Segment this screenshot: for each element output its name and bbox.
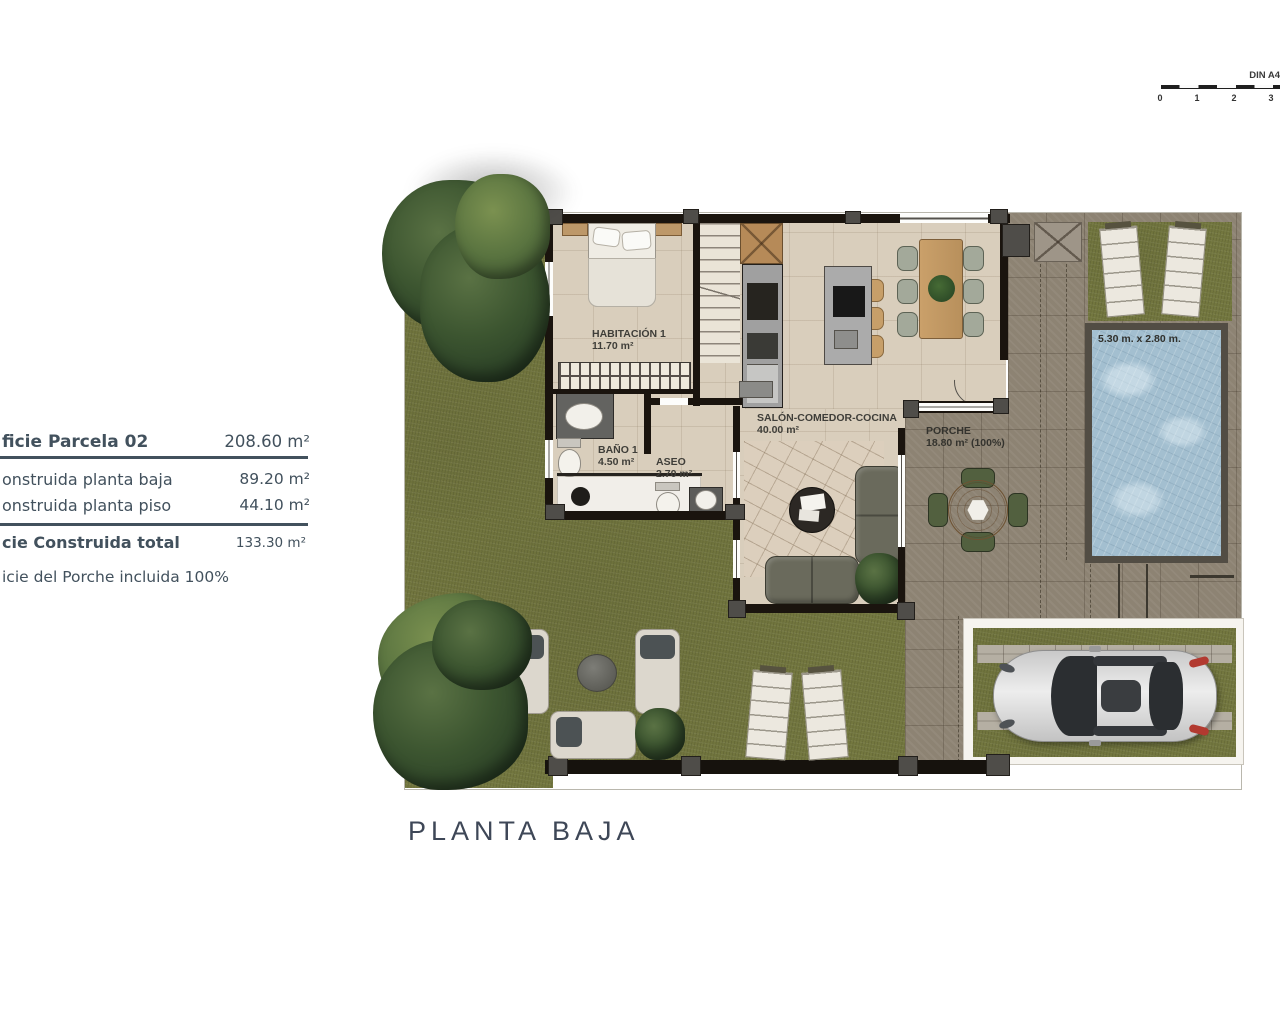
sun-lounger — [745, 669, 793, 760]
sun-lounger — [1099, 226, 1145, 318]
nightstand — [655, 223, 682, 236]
wall-bath-south — [545, 511, 745, 520]
scale-tick: 3 — [1267, 93, 1275, 103]
pool-steps — [1118, 564, 1120, 618]
room-area: 11.70 m² — [592, 340, 666, 352]
area-table: ficie Parcela 02 208.60 m² onstruida pla… — [0, 425, 320, 600]
sofa-cushion — [640, 635, 675, 659]
wall-bath-aseo — [644, 394, 651, 454]
pool-steps — [1146, 564, 1148, 618]
room-label-bano1: BAÑO 1 4.50 m² — [598, 444, 638, 468]
staircase — [700, 223, 740, 363]
room-name: BAÑO 1 — [598, 444, 638, 456]
table-row-label: icie del Porche incluida 100% — [2, 568, 229, 586]
pool-water — [1092, 330, 1221, 556]
garden-sofa — [635, 629, 680, 714]
magazine — [799, 509, 820, 522]
car-sunroof — [1101, 680, 1141, 712]
path-to-gate — [905, 620, 963, 764]
pillar — [990, 209, 1008, 224]
room-area: 40.00 m² — [757, 424, 897, 436]
fence-south — [545, 760, 1010, 774]
lounger-headrest — [1105, 221, 1131, 229]
entry-mat — [739, 381, 773, 398]
porch-chair — [928, 493, 948, 527]
room-label-habitacion1: HABITACIÓN 1 11.70 m² — [592, 328, 666, 352]
pillar — [993, 398, 1009, 414]
pillow — [592, 226, 621, 248]
appliance — [747, 333, 778, 359]
room-label-aseo: ASEO 2.70 m² — [656, 456, 692, 480]
room-name: ASEO — [656, 456, 692, 468]
car-windshield — [1051, 656, 1097, 736]
window — [900, 214, 988, 223]
wall-wardrobe — [553, 389, 693, 394]
dining-chair — [897, 279, 918, 304]
shower-drain — [571, 487, 590, 506]
lounger-headrest — [808, 665, 834, 673]
toilet — [557, 438, 581, 448]
pillow — [621, 230, 652, 251]
floor-plan-page: DIN A4 0 1 2 3 ficie Parcela 02 208.60 m… — [0, 0, 1280, 1024]
island-sink — [834, 330, 858, 349]
wall-living-south — [733, 604, 915, 613]
boundary-dashed-line — [1040, 264, 1041, 618]
room-label-salon: SALÓN-COMEDOR-COCINA 40.00 m² — [757, 412, 897, 436]
room-area: 2.70 m² — [656, 468, 692, 480]
roof-projection-pad — [1034, 222, 1082, 262]
car — [993, 646, 1217, 746]
sun-lounger — [1161, 226, 1207, 318]
page-title: PLANTA BAJA — [408, 816, 640, 847]
bed — [588, 223, 656, 307]
scale-tick: 1 — [1193, 93, 1201, 103]
table-row-label: cie Construida total — [2, 533, 180, 552]
room-area: 4.50 m² — [598, 456, 638, 468]
room-label-porche: PORCHE 18.80 m² (100%) — [926, 425, 1005, 449]
fence-post — [681, 756, 701, 776]
pillar — [903, 400, 919, 418]
window — [545, 440, 553, 478]
tree — [455, 174, 550, 279]
room-name: PORCHE — [926, 425, 1005, 437]
cooktop — [833, 286, 865, 317]
pool: 5.30 m. x 2.80 m. — [1085, 323, 1228, 563]
table-divider — [0, 456, 308, 459]
table-divider — [0, 523, 308, 526]
fence-post — [986, 754, 1010, 776]
car-mirror — [1089, 646, 1101, 652]
dining-chair — [963, 279, 984, 304]
table-row-value: 208.60 m² — [180, 432, 310, 451]
wall-bedroom-stairs — [693, 223, 700, 406]
scale-bar: DIN A4 0 1 2 3 — [1158, 70, 1280, 104]
pillar — [845, 211, 861, 224]
lounger-headrest — [1175, 221, 1201, 229]
oven — [747, 283, 778, 320]
porch-chair — [1008, 493, 1028, 527]
dining-chair — [897, 312, 918, 337]
car-mirror — [1089, 740, 1101, 746]
lounger-headrest — [760, 665, 786, 673]
room-name: SALÓN-COMEDOR-COCINA — [757, 412, 897, 424]
sofa — [765, 556, 859, 604]
boundary-dashed-line — [1066, 264, 1067, 560]
pillar — [683, 209, 699, 224]
scale-bar-strip — [1161, 85, 1280, 89]
window — [733, 540, 740, 578]
table-row-label: onstruida planta baja — [2, 470, 173, 489]
garden-table — [577, 654, 617, 692]
handrail — [1190, 575, 1234, 578]
sliding-door — [917, 401, 1001, 413]
glass-wall — [898, 455, 905, 547]
tree — [432, 600, 532, 690]
door-gap — [660, 398, 688, 405]
stair-landing — [740, 223, 783, 264]
window — [733, 452, 740, 498]
sofa-cushion — [556, 717, 582, 747]
table-row-value: 133.30 m² — [180, 535, 306, 551]
scale-tick: 0 — [1156, 93, 1164, 103]
pillar — [725, 504, 745, 520]
garden-sofa — [550, 711, 636, 759]
table-row-value: 44.10 m² — [180, 496, 310, 514]
table-row-label: ficie Parcela 02 — [2, 432, 148, 452]
kitchen-island — [824, 266, 872, 365]
wash-basin — [565, 403, 603, 430]
garden-bush — [635, 708, 685, 760]
car-rear-window — [1149, 662, 1183, 730]
table-plant — [928, 275, 955, 302]
toilet — [655, 482, 680, 491]
boundary-dashed-line — [958, 616, 959, 762]
duvet — [588, 258, 656, 307]
dining-chair — [963, 312, 984, 337]
pillar — [1002, 224, 1030, 257]
sun-lounger — [801, 669, 849, 760]
table-row-value: 89.20 m² — [180, 470, 310, 488]
dining-chair — [897, 246, 918, 271]
table-row-label: onstruida planta piso — [2, 496, 171, 515]
scale-bar-label: DIN A4 — [1249, 70, 1280, 81]
dining-chair — [963, 246, 984, 271]
pillar — [545, 504, 565, 520]
room-name: HABITACIÓN 1 — [592, 328, 666, 340]
pillar — [728, 600, 746, 618]
pillar — [897, 602, 915, 620]
fence-post — [898, 756, 918, 776]
boundary-dashed-line — [1090, 564, 1091, 618]
room-area: 18.80 m² (100%) — [926, 437, 1005, 449]
scale-tick: 2 — [1230, 93, 1238, 103]
pool-dimensions-label: 5.30 m. x 2.80 m. — [1098, 333, 1181, 345]
aseo-sink-bowl — [695, 490, 717, 510]
fence-post — [548, 756, 568, 776]
wardrobe — [558, 362, 691, 390]
